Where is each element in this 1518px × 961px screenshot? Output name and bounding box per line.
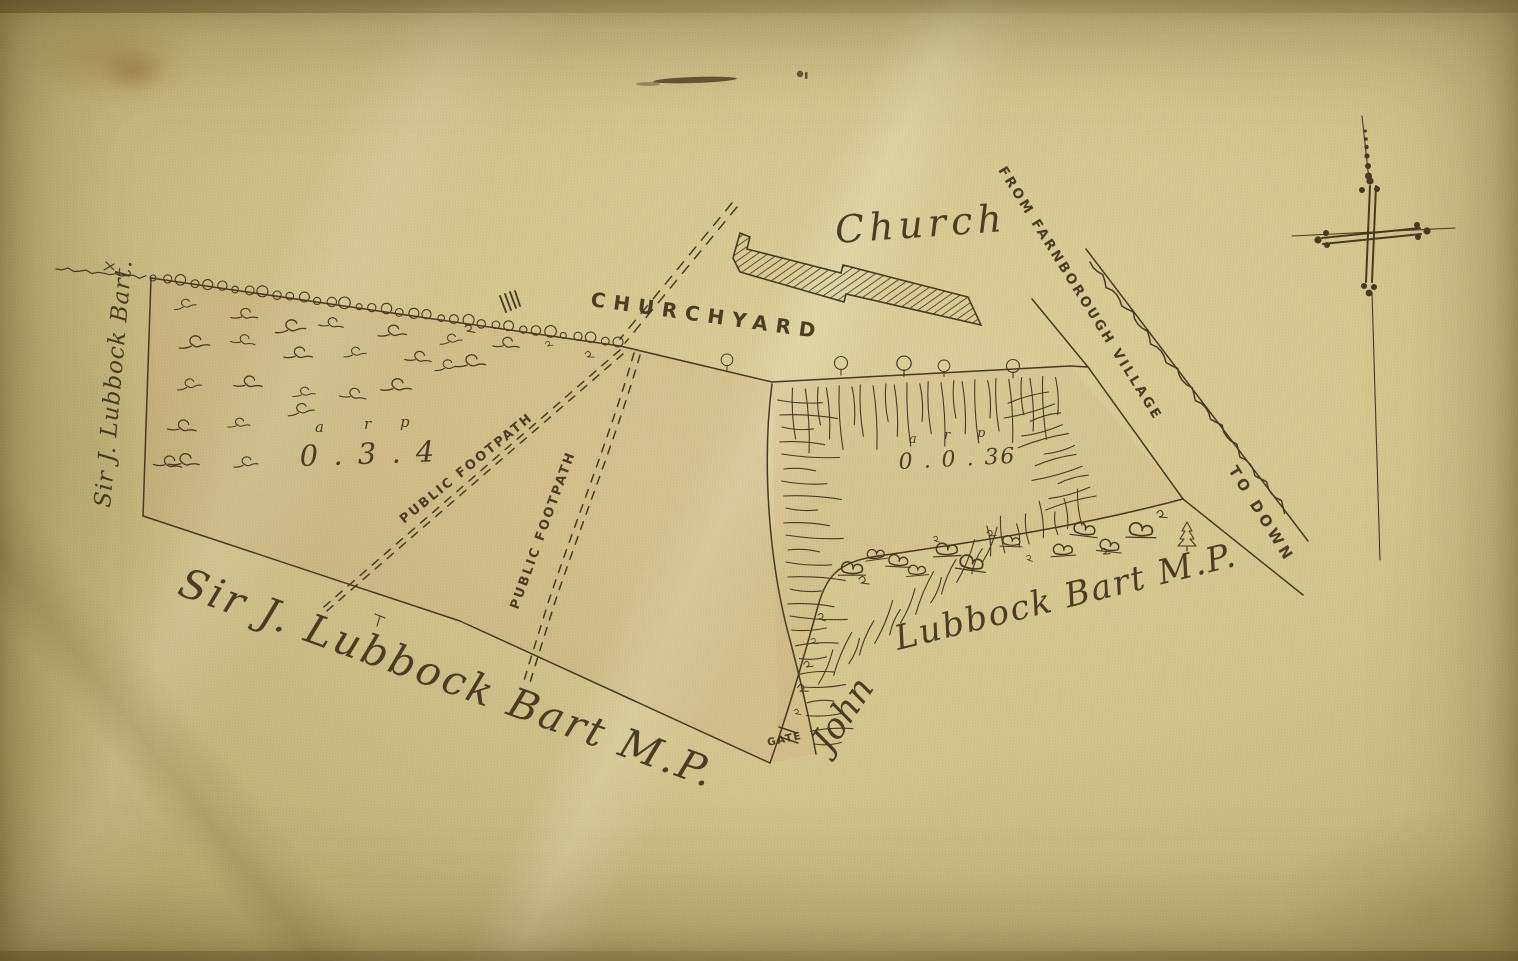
west-unit-a: a (315, 418, 324, 436)
map-drawing: Church CHURCHYARD FROM FARNBOROUGH VILLA… (0, 0, 1518, 961)
east-unit-r: r (944, 428, 951, 443)
hedge-gate-tick (500, 291, 520, 312)
owner-west-edge-label: Sir J. Lubbock Bart. (90, 258, 138, 508)
west-unit-r: r (364, 415, 372, 433)
church-label: Church (834, 196, 1009, 252)
west-unit-p: p (400, 413, 410, 431)
compass-rose (1292, 116, 1455, 560)
east-unit-a: a (909, 432, 917, 447)
east-unit-p: p (977, 426, 986, 441)
estate-plan-map: Church CHURCHYARD FROM FARNBOROUGH VILLA… (0, 0, 1518, 961)
ink-blots (636, 71, 808, 86)
churchyard-label: CHURCHYARD (589, 287, 825, 343)
west-area-value: 0 . 3 . 4 (299, 434, 438, 473)
